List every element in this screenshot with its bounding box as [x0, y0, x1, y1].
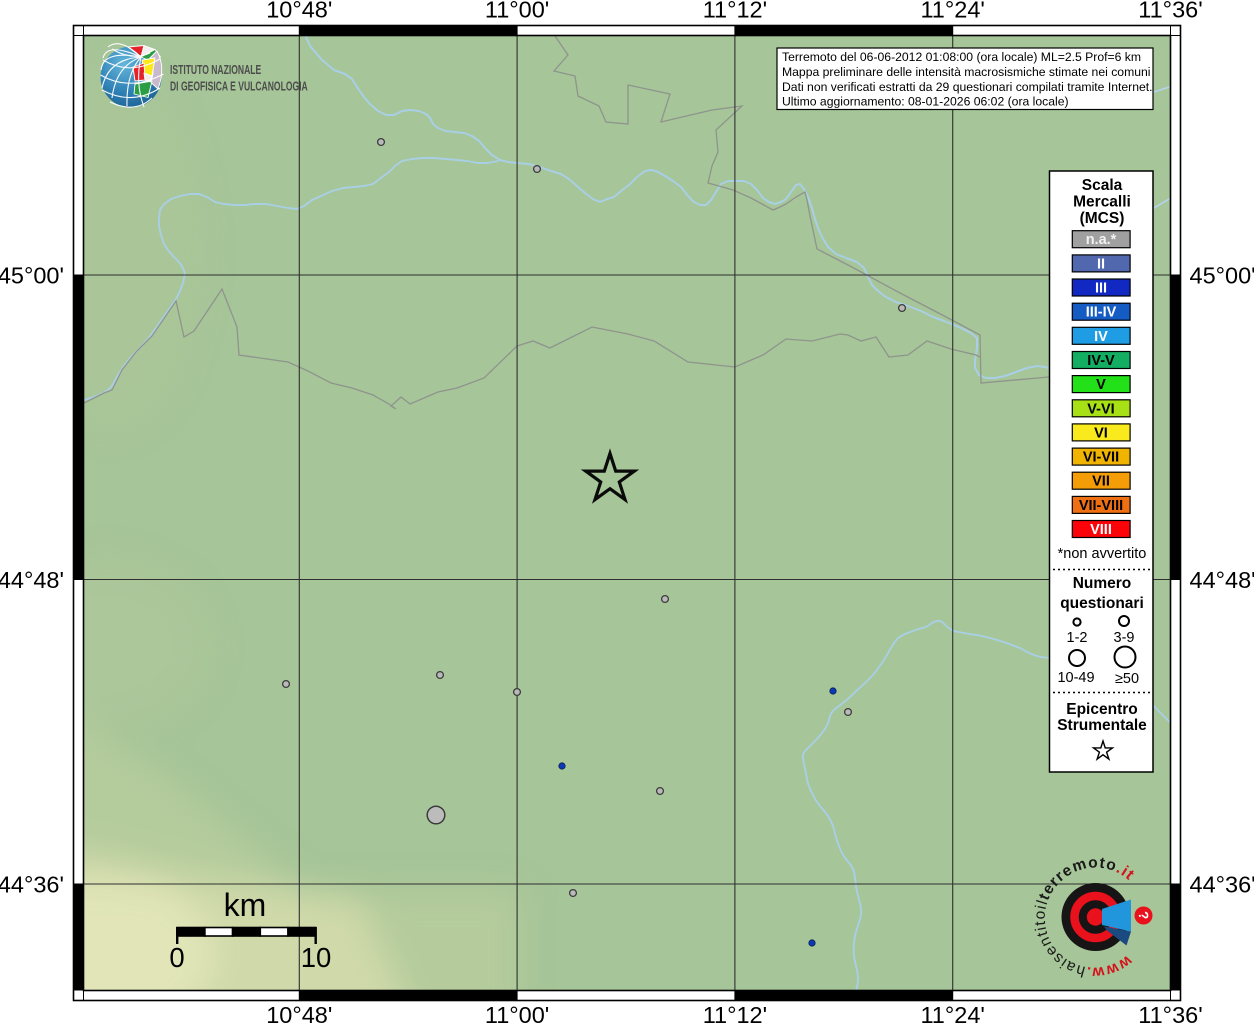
- svg-text:0: 0: [169, 942, 184, 973]
- svg-text:10°48': 10°48': [266, 0, 332, 23]
- svg-text:1-2: 1-2: [1067, 630, 1088, 646]
- svg-text:10-49: 10-49: [1057, 670, 1094, 686]
- svg-text:IV-V: IV-V: [1087, 353, 1115, 369]
- svg-text:(MCS): (MCS): [1080, 210, 1125, 227]
- svg-text:VI-VII: VI-VII: [1083, 450, 1119, 466]
- svg-text:VIII: VIII: [1090, 522, 1112, 538]
- svg-text:11°12': 11°12': [703, 0, 767, 23]
- svg-text:VII: VII: [1092, 474, 1110, 490]
- svg-text:IV: IV: [1094, 329, 1108, 345]
- svg-text:questionari: questionari: [1060, 595, 1144, 612]
- svg-text:V: V: [1096, 377, 1106, 393]
- svg-text:V-VI: V-VI: [1087, 401, 1114, 417]
- svg-text:44°48': 44°48': [1190, 567, 1254, 593]
- svg-text:Dati non verificati estratti d: Dati non verificati estratti da 29 quest…: [782, 80, 1153, 94]
- svg-text:III: III: [1095, 281, 1107, 297]
- svg-text:n.a.*: n.a.*: [1086, 232, 1117, 248]
- svg-text:Epicentro: Epicentro: [1066, 701, 1137, 718]
- svg-text:11°00': 11°00': [485, 1002, 549, 1024]
- svg-text:44°48': 44°48': [0, 567, 64, 593]
- svg-text:3-9: 3-9: [1114, 630, 1135, 646]
- svg-text:Ultimo aggiornamento: 08-01-20: Ultimo aggiornamento: 08-01-2026 06:02 (…: [782, 95, 1069, 109]
- svg-text:Scala: Scala: [1082, 177, 1123, 194]
- svg-text:DI GEOFISICA E VULCANOLOGIA: DI GEOFISICA E VULCANOLOGIA: [170, 80, 308, 94]
- svg-text:Numero: Numero: [1073, 575, 1132, 592]
- svg-text:11°36': 11°36': [1138, 1002, 1202, 1024]
- svg-text:44°36': 44°36': [1190, 871, 1254, 897]
- svg-text:III-IV: III-IV: [1086, 305, 1117, 321]
- svg-text:10: 10: [301, 942, 332, 973]
- svg-text:Mercalli: Mercalli: [1073, 194, 1131, 211]
- svg-text:II: II: [1097, 256, 1105, 272]
- svg-text:45°00': 45°00': [1190, 262, 1254, 288]
- svg-text:≥50: ≥50: [1115, 671, 1139, 687]
- svg-text:11°12': 11°12': [703, 1002, 767, 1024]
- svg-text:11°24': 11°24': [920, 1002, 984, 1024]
- svg-text:11°00': 11°00': [485, 0, 549, 23]
- svg-text:VII-VIII: VII-VIII: [1079, 498, 1123, 514]
- svg-text:km: km: [224, 887, 267, 923]
- svg-text:Terremoto del 06-06-2012 01:08: Terremoto del 06-06-2012 01:08:00 (ora l…: [782, 50, 1141, 64]
- svg-text:11°36': 11°36': [1138, 0, 1202, 23]
- svg-text:*non avvertito: *non avvertito: [1058, 546, 1147, 562]
- svg-text:ISTITUTO NAZIONALE: ISTITUTO NAZIONALE: [170, 63, 261, 77]
- svg-text:Strumentale: Strumentale: [1057, 717, 1147, 734]
- svg-text:44°36': 44°36': [0, 871, 64, 897]
- svg-text:VI: VI: [1094, 425, 1108, 441]
- svg-text:Mappa preliminare delle intens: Mappa preliminare delle intensità macros…: [782, 65, 1151, 79]
- svg-text:45°00': 45°00': [0, 262, 64, 288]
- svg-text:11°24': 11°24': [920, 0, 984, 23]
- svg-text:10°48': 10°48': [266, 1002, 332, 1024]
